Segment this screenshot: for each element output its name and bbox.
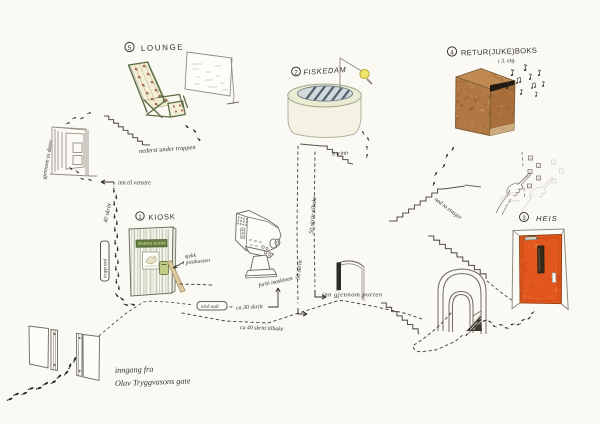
svg-text:LOUNGE: LOUNGE bbox=[141, 42, 185, 53]
svg-text:⇒: ⇒ bbox=[229, 305, 233, 311]
svg-text:BURAS KIOSK: BURAS KIOSK bbox=[138, 241, 166, 245]
svg-text:inn til venstre: inn til venstre bbox=[118, 181, 151, 187]
svg-text:inn gjennom porten: inn gjennom porten bbox=[322, 292, 383, 299]
svg-text:5: 5 bbox=[128, 45, 132, 52]
svg-text:HEIS: HEIS bbox=[536, 214, 558, 223]
svg-text:KIOSK: KIOSK bbox=[148, 212, 176, 222]
svg-text:inngang fra: inngang fra bbox=[115, 365, 154, 375]
svg-text:i 3. etg.: i 3. etg. bbox=[498, 58, 516, 65]
svg-text:trapp ned: trapp ned bbox=[104, 258, 109, 278]
svg-text:nivå null: nivå null bbox=[201, 304, 219, 310]
